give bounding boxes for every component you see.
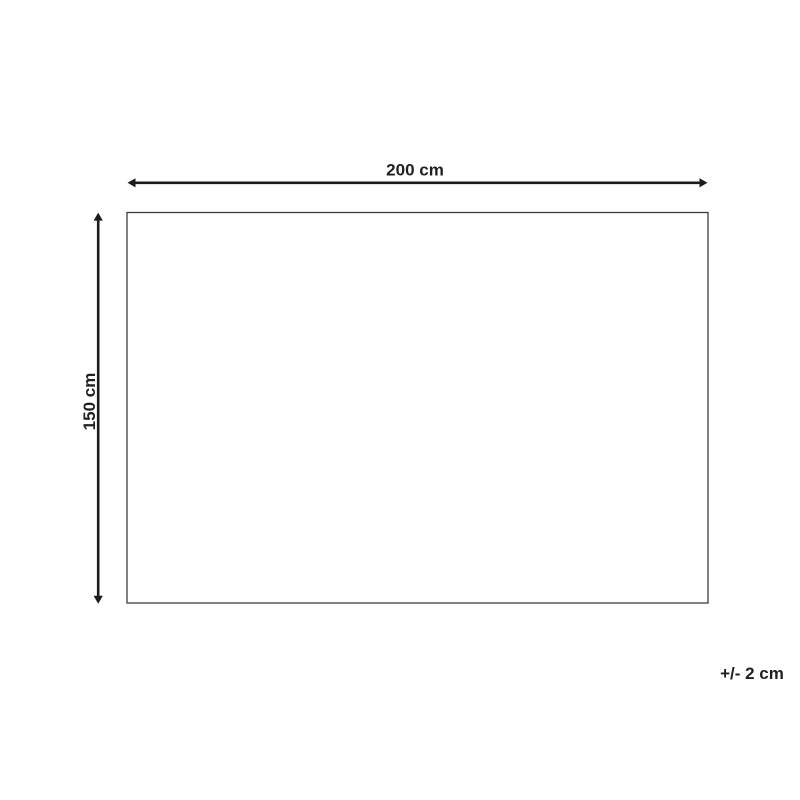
svg-text:+/- 2 cm: +/- 2 cm <box>720 664 784 683</box>
svg-text:150 cm: 150 cm <box>80 373 99 431</box>
svg-text:200 cm: 200 cm <box>386 161 444 180</box>
